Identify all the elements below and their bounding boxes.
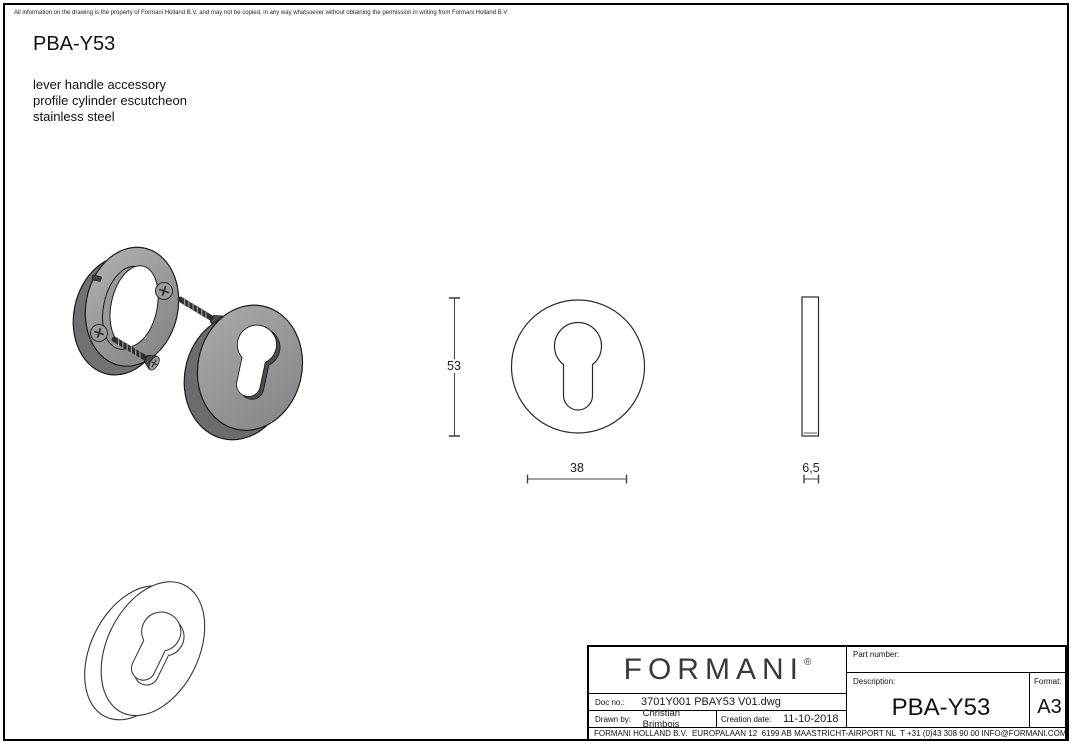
company-footer-cell: FORMANI HOLLAND B.V. EUROPALAAN 12 6199 … [589,727,1065,739]
dimension-thickness [804,475,819,484]
escutcheon-cover [173,293,314,452]
exploded-isometric-view [62,236,314,452]
description-label: Description: [853,677,1029,686]
title-block: FORMANI® Doc no.: 3701Y001 PBAY53 V01.dw… [587,645,1067,741]
description-cell: Description: PBA-Y53 [847,673,1030,727]
dim-height-label: 53 [440,359,468,373]
side-view [802,297,819,436]
screw-head-upper [156,283,173,300]
drawn-by-cell: Drawn by: Christian Brimbois [589,711,717,727]
doc-no-cell: Doc no.: 3701Y001 PBAY53 V01.dwg [589,694,847,711]
creation-date-cell: Creation date: 11-10-2018 [717,711,847,727]
format-cell: Format: A3 [1030,673,1065,727]
creation-date-label: Creation date: [717,715,783,724]
format-value: A3 [1034,696,1065,719]
drawing-sheet: All information on the drawing is the pr… [0,0,1072,744]
description-value: PBA-Y53 [853,694,1029,722]
dim-width-label: 38 [563,461,591,475]
front-view [512,300,645,433]
doc-no-value: 3701Y001 PBAY53 V01.dwg [641,696,781,708]
drawn-by-label: Drawn by: [589,715,643,724]
registered-trademark-symbol: ® [804,657,811,668]
part-number-label: Part number: [853,650,1065,659]
screw-head-lower [91,325,108,342]
doc-no-label: Doc no.: [589,698,641,707]
creation-date-value: 11-10-2018 [783,713,838,725]
technical-drawing-canvas [0,0,1072,744]
logo-wordmark: FORMANI [624,653,804,686]
part-number-cell: Part number: [847,647,1065,673]
company-footer-text: FORMANI HOLLAND B.V. EUROPALAAN 12 6199 … [589,729,1065,738]
wireframe-isometric-view [64,559,225,743]
escutcheon-back-plate [62,236,189,385]
dimension-width [528,475,627,484]
logo-cell: FORMANI® [589,647,847,694]
format-label: Format: [1034,677,1065,686]
dim-thickness-label: 6,5 [794,461,828,475]
formani-logo: FORMANI® [624,653,812,687]
